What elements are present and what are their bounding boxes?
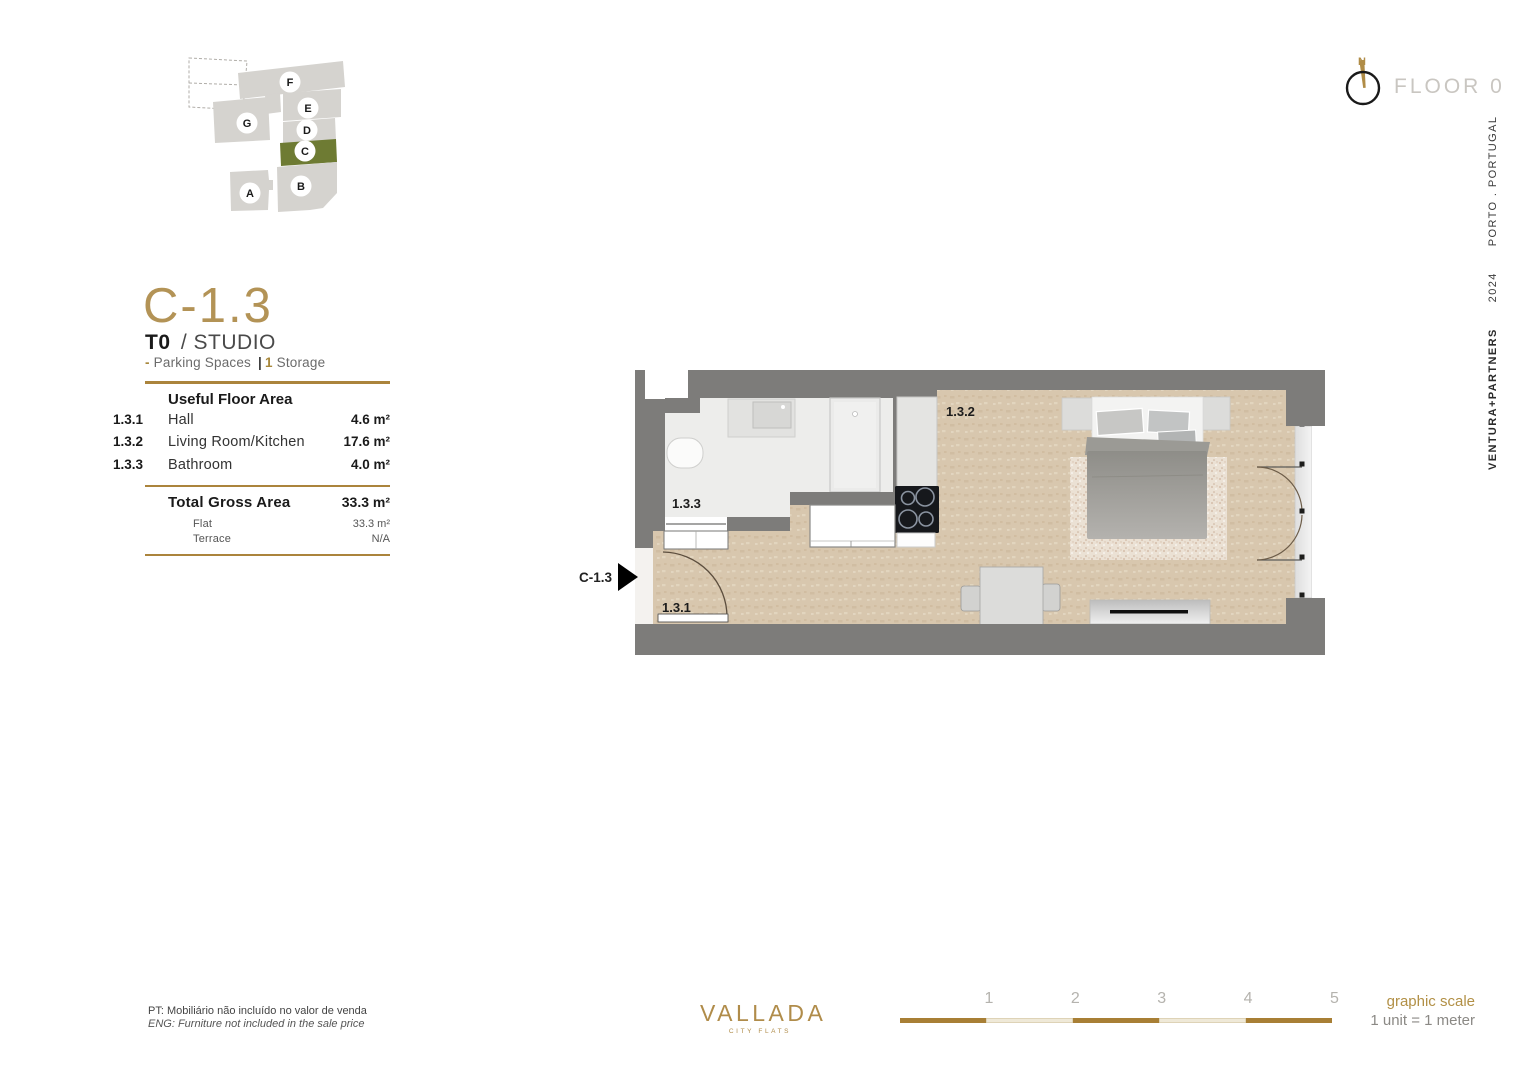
scale-tick: 2 bbox=[993, 990, 1079, 1008]
side-year: 2024 bbox=[1487, 272, 1499, 302]
footnote-en: ENG: Furniture not included in the sale … bbox=[148, 1018, 367, 1031]
nightstand-left bbox=[1062, 398, 1092, 430]
table-sub-row: Flat 33.3 m² bbox=[113, 518, 390, 533]
side-credits: VENTURA+PARTNERS2024PORTO . PORTUGAL bbox=[1487, 116, 1499, 470]
svg-text:B: B bbox=[297, 181, 305, 193]
tv bbox=[1110, 610, 1188, 614]
wall-corner-tr bbox=[1286, 370, 1325, 426]
bed bbox=[1085, 397, 1210, 539]
scale-bar bbox=[900, 1018, 1332, 1023]
svg-text:C: C bbox=[301, 146, 309, 158]
scale-tick: 5 bbox=[1253, 990, 1339, 1008]
area-table-title: Useful Floor Area bbox=[168, 384, 390, 412]
row-code: 1.3.1 bbox=[113, 412, 168, 427]
scale-segment bbox=[1246, 1018, 1332, 1023]
scale-tick: 1 bbox=[907, 990, 993, 1008]
scale-tick: 3 bbox=[1080, 990, 1166, 1008]
site-plan: A B C D E F G bbox=[183, 48, 395, 240]
table-total-row: Total Gross Area 33.3 m² bbox=[113, 487, 390, 518]
floor-label: FLOOR 0 bbox=[1394, 75, 1505, 99]
unit-features: - Parking Spaces |1 Storage bbox=[145, 355, 325, 370]
room-label-hall: 1.3.1 bbox=[662, 600, 691, 615]
table-rule-bottom bbox=[145, 554, 390, 557]
wall-stub bbox=[727, 517, 790, 526]
north-compass-icon: N bbox=[1341, 50, 1387, 108]
svg-text:A: A bbox=[246, 188, 254, 200]
features-separator: | bbox=[258, 355, 262, 370]
table-row: 1.3.2 Living Room/Kitchen 17.6 m² bbox=[113, 434, 390, 457]
entrance-marker: C-1.3 bbox=[579, 563, 638, 591]
logo-wordmark: VALLADA bbox=[700, 1000, 820, 1027]
scale-subtitle: 1 unit = 1 meter bbox=[1340, 1012, 1475, 1029]
area-table: Useful Floor Area 1.3.1 Hall 4.6 m² 1.3.… bbox=[113, 381, 390, 556]
wall-bottom bbox=[635, 624, 1325, 655]
svg-text:G: G bbox=[243, 118, 252, 130]
sub-name: Flat bbox=[193, 518, 353, 530]
features-dash: - bbox=[145, 355, 150, 370]
wall bbox=[790, 492, 897, 505]
footnotes: PT: Mobiliário não incluído no valor de … bbox=[148, 1005, 367, 1031]
sub-value: N/A bbox=[372, 533, 390, 545]
tv-unit bbox=[1090, 600, 1210, 624]
side-location: PORTO . PORTUGAL bbox=[1487, 116, 1499, 247]
sub-value: 33.3 m² bbox=[353, 518, 390, 530]
row-name: Hall bbox=[168, 412, 351, 428]
row-value: 4.6 m² bbox=[351, 412, 390, 427]
row-name: Bathroom bbox=[168, 457, 351, 473]
unit-code: C-1.3 bbox=[143, 278, 273, 334]
side-brand: VENTURA+PARTNERS bbox=[1487, 328, 1499, 470]
scale-segment bbox=[900, 1018, 986, 1023]
wall-corner-br bbox=[1286, 598, 1325, 655]
row-code: 1.3.3 bbox=[113, 457, 168, 472]
table-row: 1.3.1 Hall 4.6 m² bbox=[113, 412, 390, 435]
row-name: Living Room/Kitchen bbox=[168, 434, 343, 450]
features-storage: Storage bbox=[277, 355, 326, 370]
scale-title: graphic scale bbox=[1340, 993, 1475, 1010]
total-label: Total Gross Area bbox=[168, 494, 342, 511]
table-row: 1.3.3 Bathroom 4.0 m² bbox=[113, 457, 390, 480]
vallada-logo: VALLADA CITY FLATS bbox=[700, 1000, 820, 1035]
scale-segment bbox=[1073, 1018, 1159, 1023]
entrance-label: C-1.3 bbox=[579, 570, 613, 585]
graphic-scale: 1 2 3 4 5 bbox=[900, 990, 1332, 1023]
floorplan-sheet: A B C D E F G C-1.3 T0 / STUDIO - Parkin… bbox=[0, 0, 1528, 1080]
room-label-living: 1.3.2 bbox=[946, 404, 975, 419]
features-parking: Parking Spaces bbox=[154, 355, 251, 370]
unit-type: T0 / STUDIO bbox=[145, 331, 276, 355]
logo-subtitle: CITY FLATS bbox=[700, 1028, 820, 1035]
scale-segment bbox=[986, 1018, 1072, 1023]
row-code: 1.3.2 bbox=[113, 434, 168, 449]
row-value: 17.6 m² bbox=[343, 434, 390, 449]
svg-text:D: D bbox=[303, 125, 311, 137]
svg-text:F: F bbox=[287, 77, 294, 89]
svg-text:E: E bbox=[304, 103, 311, 115]
nightstand-right bbox=[1203, 397, 1230, 430]
unit-type-name: / STUDIO bbox=[181, 331, 276, 354]
row-value: 4.0 m² bbox=[351, 457, 390, 472]
scale-segment bbox=[1159, 1018, 1245, 1023]
floor-plan: 1.3.1 1.3.2 1.3.3 C-1.3 bbox=[570, 365, 1330, 665]
wall-notch bbox=[645, 370, 688, 399]
scale-caption: graphic scale 1 unit = 1 meter bbox=[1340, 993, 1475, 1029]
room-label-bath: 1.3.3 bbox=[672, 496, 701, 511]
sub-name: Terrace bbox=[193, 533, 372, 545]
scale-numbers: 1 2 3 4 5 bbox=[900, 990, 1332, 1008]
features-storage-count: 1 bbox=[265, 355, 273, 370]
table-sub-row: Terrace N/A bbox=[113, 533, 390, 548]
total-value: 33.3 m² bbox=[342, 494, 390, 510]
toilet bbox=[667, 438, 703, 468]
footnote-pt: PT: Mobiliário não incluído no valor de … bbox=[148, 1005, 367, 1018]
scale-tick: 4 bbox=[1166, 990, 1252, 1008]
unit-type-code: T0 bbox=[145, 331, 171, 354]
